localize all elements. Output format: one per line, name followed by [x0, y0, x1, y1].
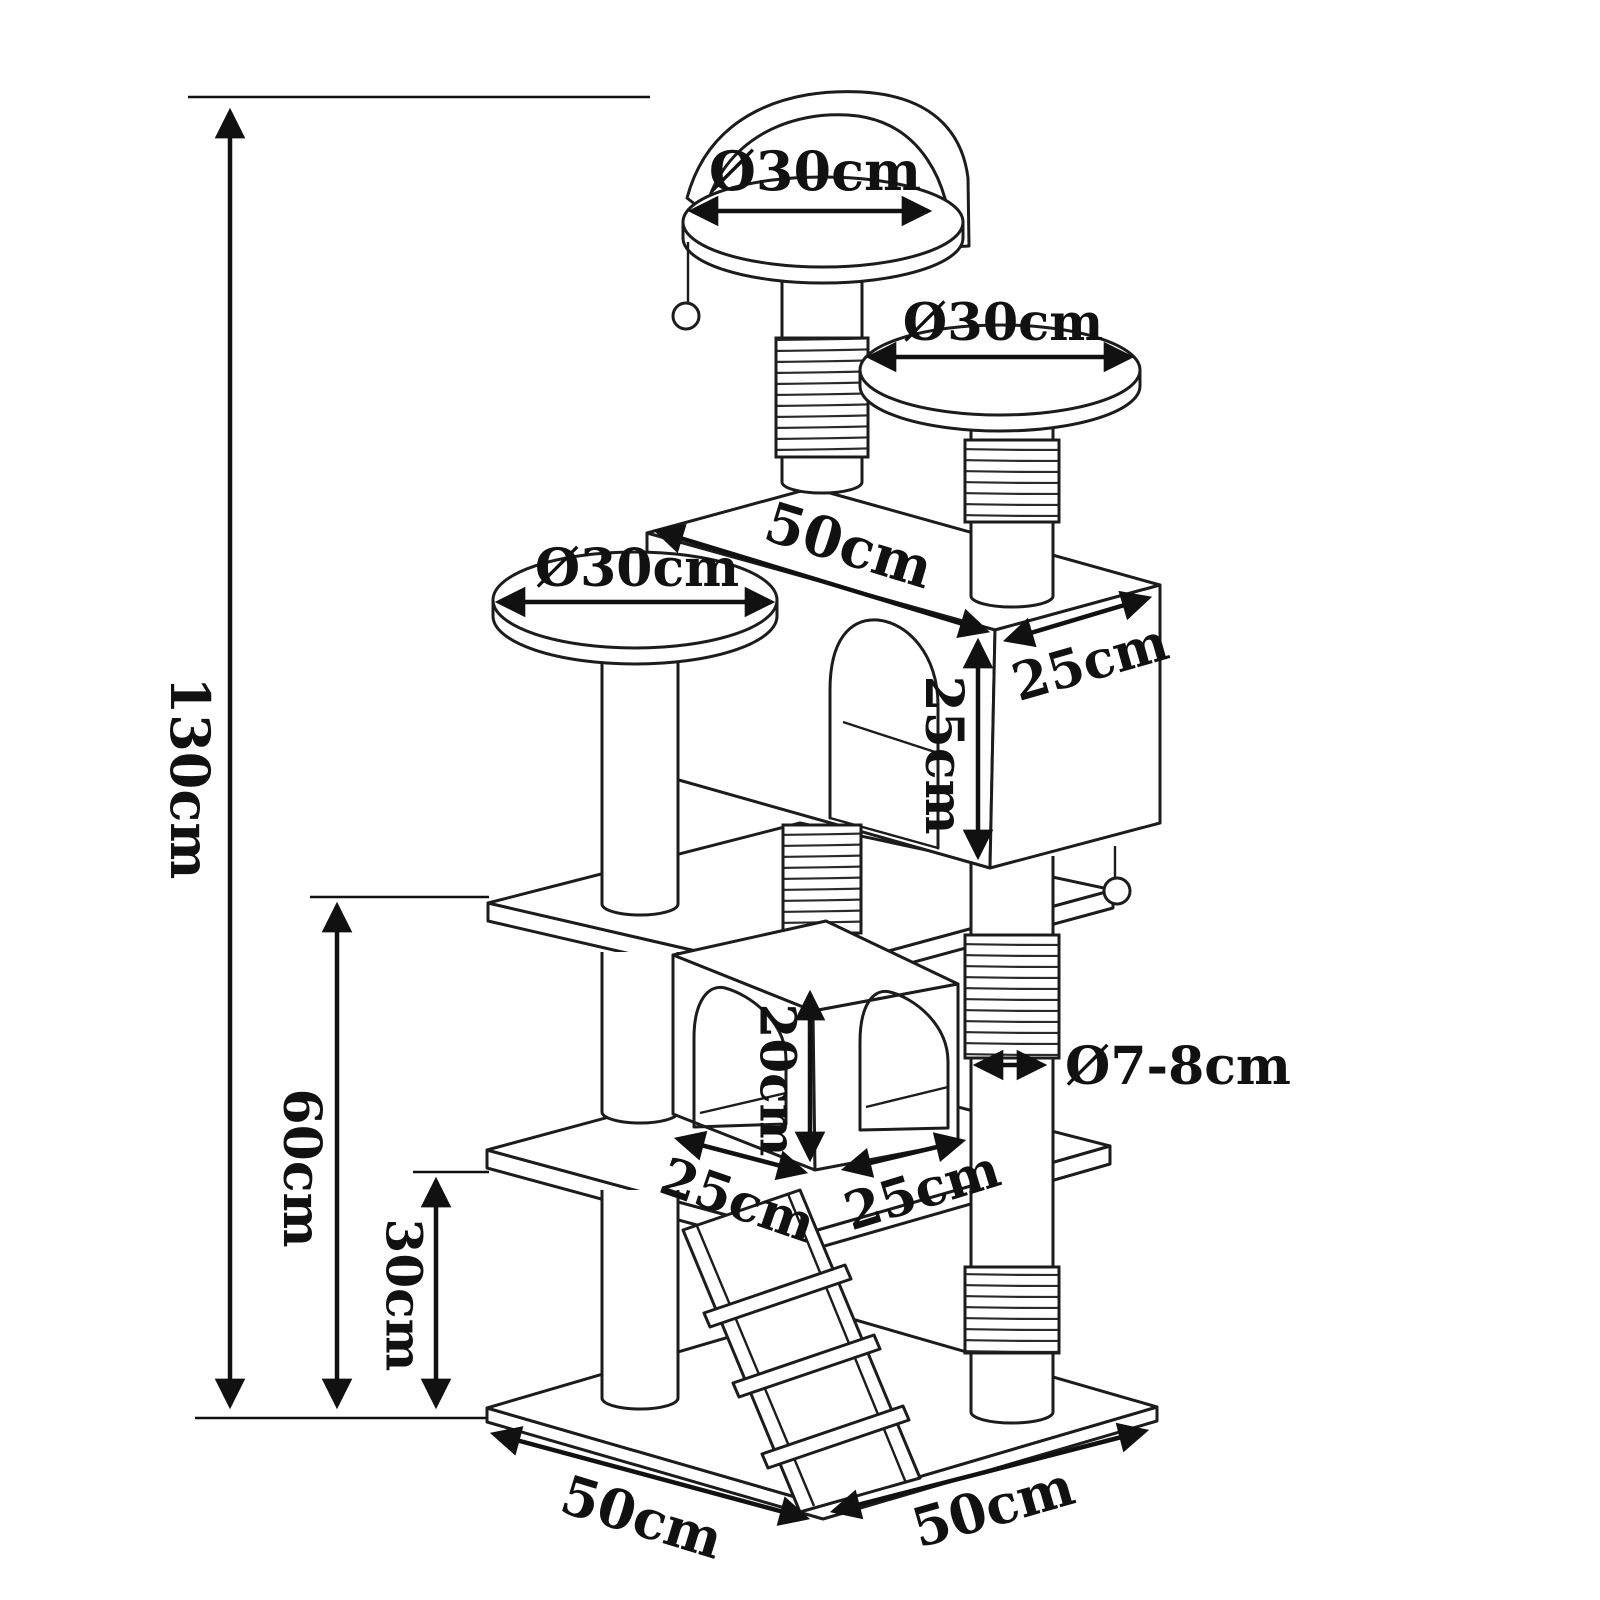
left-post-middle-segment [602, 952, 678, 1123]
left-post-upper-segment [602, 655, 678, 915]
height-dimension-lines [230, 112, 436, 1405]
connector-sisal-wrap [783, 825, 861, 933]
cube-front-right-face [813, 984, 958, 1170]
label-post-diameter: Ø7-8cm [1065, 1036, 1291, 1097]
left-post-upper [602, 655, 678, 915]
right-scratching-post [965, 856, 1059, 1423]
ball-toy [673, 303, 699, 329]
right-post-sisal-wrap [965, 1267, 1059, 1353]
top-center-post [776, 268, 868, 493]
label-condo-height: 25cm [913, 675, 974, 834]
label-top-perch-diameter: Ø30cm [709, 139, 921, 203]
right-post-upper [965, 415, 1059, 607]
cat-tree-dimension-diagram: 130cm 60cm 30cm Ø30cm Ø30cm Ø30cm 50cm 2… [0, 0, 1600, 1600]
ball-toy [1104, 878, 1130, 904]
label-house-opening-height: 20cm [749, 1004, 808, 1157]
label-left-perch-diameter: Ø30cm [535, 538, 739, 599]
label-right-perch-diameter: Ø30cm [903, 293, 1103, 353]
center-post-sisal-wrap [776, 338, 868, 457]
right-post-sisal-wrap [965, 935, 1059, 1058]
label-overall-height: 130cm [158, 677, 222, 880]
label-upper-section-height: 60cm [271, 1088, 332, 1247]
left-post-lower-segment [602, 1190, 678, 1409]
label-lower-section-height: 30cm [375, 1219, 434, 1372]
right-post-sisal-wrap [965, 440, 1059, 522]
diagram-canvas: 130cm 60cm 30cm Ø30cm Ø30cm Ø30cm 50cm 2… [0, 0, 1600, 1600]
